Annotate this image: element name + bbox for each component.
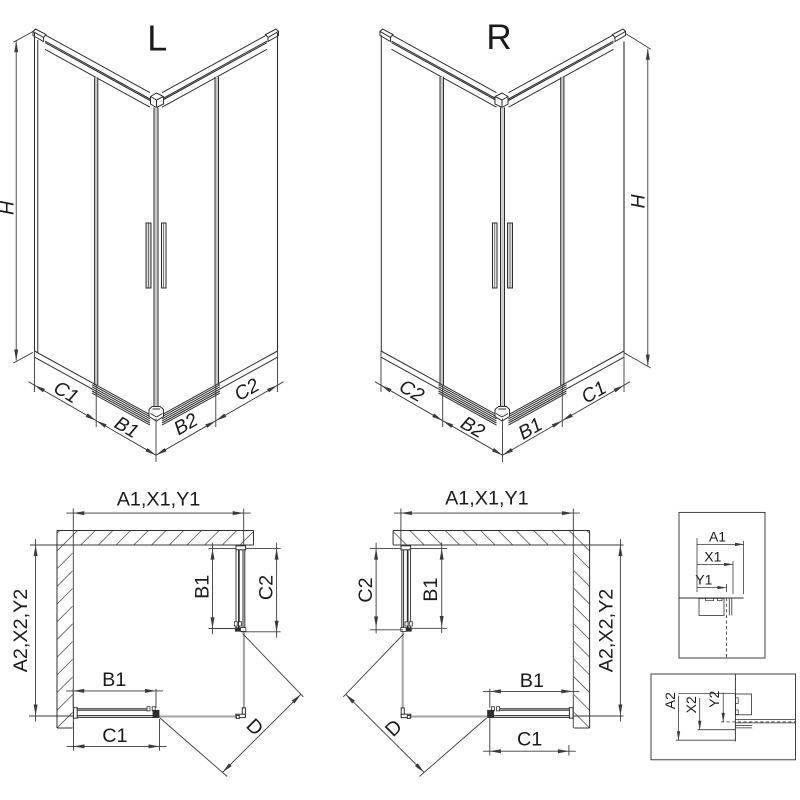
svg-text:B1: B1: [102, 669, 126, 691]
svg-text:B1: B1: [192, 575, 214, 599]
svg-text:C2: C2: [255, 575, 277, 600]
svg-text:A1,X1,Y1: A1,X1,Y1: [117, 489, 201, 511]
svg-text:C1: C1: [517, 729, 542, 751]
svg-text:H: H: [0, 200, 19, 215]
svg-text:C2: C2: [355, 577, 377, 602]
svg-text:L: L: [147, 18, 167, 59]
svg-text:Y2: Y2: [706, 690, 722, 707]
svg-text:A2,X2,Y2: A2,X2,Y2: [10, 589, 32, 673]
svg-text:A1,X1,Y1: A1,X1,Y1: [445, 488, 529, 510]
svg-text:B1: B1: [520, 670, 544, 692]
svg-text:C1: C1: [102, 725, 127, 747]
svg-text:A2: A2: [662, 692, 678, 709]
svg-text:X2: X2: [683, 696, 699, 713]
svg-text:A2,X2,Y2: A2,X2,Y2: [596, 589, 618, 673]
svg-text:Y1: Y1: [695, 572, 712, 588]
svg-text:R: R: [486, 18, 511, 57]
svg-text:H: H: [628, 194, 650, 209]
svg-text:X1: X1: [704, 549, 721, 565]
svg-text:A1: A1: [709, 529, 726, 545]
svg-text:B1: B1: [420, 577, 442, 601]
